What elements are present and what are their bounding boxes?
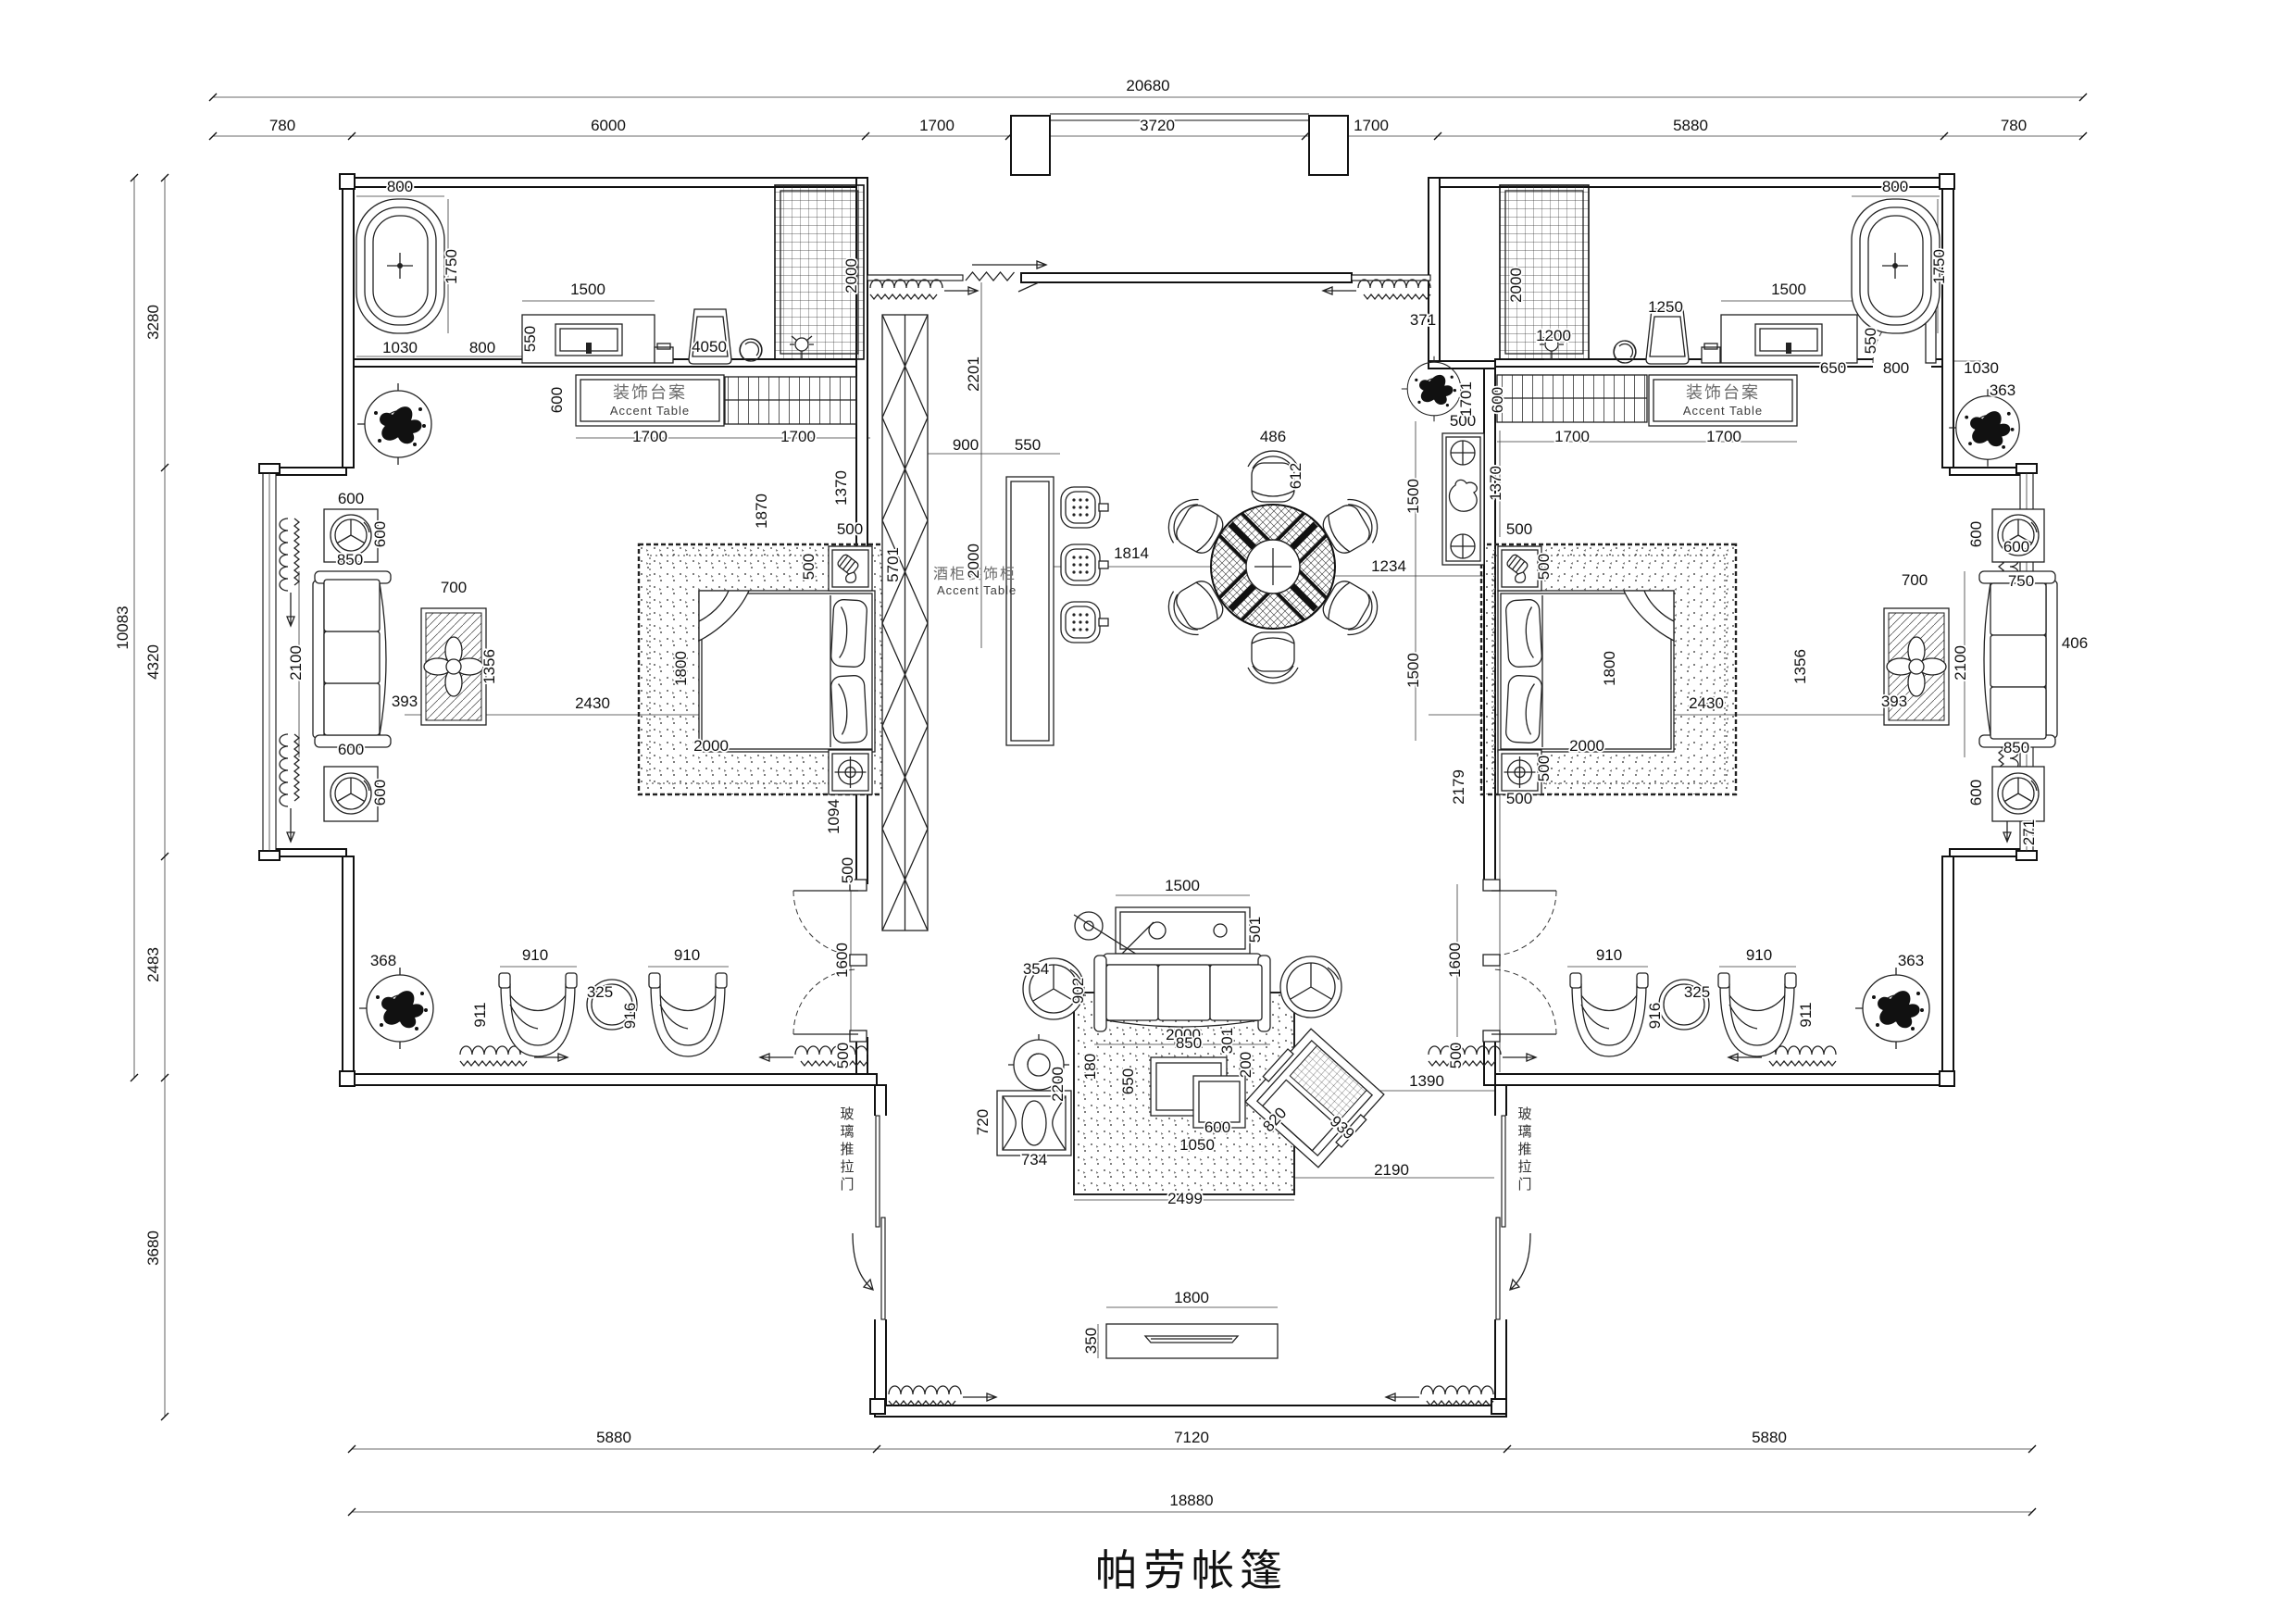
dim-label: 1800	[1601, 651, 1618, 686]
dim-label: 1701	[1457, 381, 1475, 417]
dim-label: 800	[1882, 178, 1908, 195]
wine-cabinet-icon	[882, 315, 928, 931]
dim-label: 780	[269, 117, 295, 134]
wall-extension-bottom	[875, 1405, 1506, 1417]
dim-label: 1250	[1648, 298, 1683, 316]
dim-label: 2200	[1049, 1067, 1067, 1102]
dim-label: 1356	[1791, 649, 1809, 684]
dim-label: 1500	[1404, 479, 1422, 514]
dim-label: 2000	[965, 543, 982, 579]
dim-label: 1500	[1165, 877, 1200, 894]
dim-label: 911	[471, 1002, 489, 1027]
dim-label: 700	[441, 579, 467, 596]
dim-label: 4050	[692, 338, 727, 356]
dim-label: 371	[1410, 311, 1436, 329]
wall-bay-connector	[1950, 468, 2022, 475]
dim-label: 7120	[1174, 1429, 1209, 1446]
window-cap	[2016, 464, 2037, 473]
dim-label: 1050	[1179, 1136, 1215, 1154]
dim-label: 4320	[144, 644, 162, 680]
dim-label: 1500	[1404, 653, 1422, 688]
dim-label: 612	[1287, 463, 1304, 489]
wine-cabinet-label-en: Accent Table	[937, 583, 1017, 597]
side-table	[1992, 767, 2044, 821]
dim-label: 600	[2003, 538, 2029, 556]
dim-label: 750	[2008, 572, 2034, 590]
dim-label: 1500	[570, 281, 605, 298]
dim-label: 20680	[1126, 77, 1169, 94]
dim-label: 325	[587, 983, 613, 1001]
dim-label: 910	[674, 946, 700, 964]
dim-label: 600	[338, 741, 364, 758]
dim-label: 2179	[1450, 769, 1467, 805]
corner-post	[870, 1399, 885, 1414]
dim-label: 1700	[1554, 428, 1590, 445]
dim-label: 1700	[919, 117, 955, 134]
dim-label: 550	[521, 326, 539, 352]
dim-label: 1200	[1536, 327, 1571, 344]
dim-label: 1370	[832, 470, 850, 506]
corner-post	[340, 1071, 355, 1086]
dim-label: 393	[392, 693, 418, 710]
dim-label: 916	[621, 1003, 639, 1029]
dim-label: 363	[1990, 381, 2015, 399]
dim-label: 650	[1119, 1068, 1137, 1094]
dim-label: 600	[338, 490, 364, 507]
dim-label: 180	[1081, 1054, 1099, 1080]
dim-label: 1700	[632, 428, 668, 445]
dim-label: 1800	[1174, 1289, 1209, 1306]
dim-label: 500	[1506, 790, 1532, 807]
wall-break-icon	[966, 272, 1015, 281]
console-table-icon	[1116, 907, 1250, 954]
dim-label: 354	[1023, 960, 1049, 978]
bar-counter-icon	[1006, 477, 1054, 745]
dim-label: 850	[337, 551, 363, 568]
dim-label: 1356	[480, 649, 498, 684]
dim-label: 720	[974, 1109, 992, 1135]
dim-label: 500	[839, 857, 856, 883]
dim-label: 10083	[114, 606, 131, 649]
dim-label: 900	[953, 436, 979, 454]
dim-label: 500	[1506, 520, 1532, 538]
dim-label: 1700	[1706, 428, 1741, 445]
dim-label: 550	[1015, 436, 1041, 454]
dim-label: 2430	[1689, 694, 1724, 712]
drawing-title: 帕劳帐篷	[1095, 1547, 1288, 1594]
dim-label: 1370	[1487, 466, 1504, 501]
wall-bay-connector	[274, 468, 346, 475]
dim-label: 3680	[144, 1230, 162, 1266]
dim-label: 5880	[596, 1429, 631, 1446]
wall-left-upper	[343, 178, 354, 468]
dim-label: 2000	[1507, 268, 1525, 303]
dim-label: 2190	[1374, 1161, 1409, 1179]
dim-label: 600	[1204, 1118, 1230, 1136]
dim-label: 1390	[1409, 1072, 1444, 1090]
dim-label: 5701	[884, 547, 902, 582]
dim-label: 800	[1883, 359, 1909, 377]
wall-bottom-right-suite	[1495, 1074, 1953, 1085]
porch-column	[1309, 116, 1348, 175]
dim-label: 911	[1797, 1002, 1815, 1027]
round-side-table	[1280, 956, 1341, 1018]
dim-label: 550	[1862, 328, 1879, 354]
dim-label: 1600	[833, 943, 851, 978]
window-cap	[259, 464, 280, 473]
fan-ornament-icon	[740, 339, 762, 361]
dim-label: 500	[1535, 554, 1553, 580]
curtains	[280, 280, 2018, 1405]
dim-label: 600	[1967, 780, 1985, 806]
accent-table-right-label-zh: 装饰台案	[1686, 383, 1760, 402]
dim-label: 271	[2020, 819, 2038, 845]
console-strip-icon	[1442, 433, 1484, 565]
dim-label: 1030	[1964, 359, 1999, 377]
dim-label: 5880	[1752, 1429, 1787, 1446]
dim-label: 406	[2062, 634, 2088, 652]
dim-label: 501	[1246, 917, 1264, 943]
dim-label: 500	[1535, 756, 1553, 781]
wall-inner-right-top	[1429, 178, 1440, 369]
dim-label: 850	[1176, 1034, 1202, 1052]
accent-table-right-label-en: Accent Table	[1683, 404, 1763, 418]
dim-label: 2430	[575, 694, 610, 712]
extension-room	[1106, 1324, 1278, 1358]
dim-label: 3720	[1140, 117, 1175, 134]
dim-label: 18880	[1169, 1492, 1213, 1509]
dim-label: 350	[1082, 1328, 1100, 1354]
dim-label: 6000	[591, 117, 626, 134]
dim-label: 500	[800, 554, 817, 580]
accent-table-left-label-en: Accent Table	[610, 404, 690, 418]
dim-label: 1800	[672, 651, 690, 686]
center-zone	[882, 315, 1484, 931]
side-table	[324, 767, 378, 821]
dim-label: 2201	[965, 356, 982, 392]
dim-label: 734	[1021, 1151, 1047, 1168]
dim-label: 1094	[825, 799, 842, 834]
dim-label: 600	[1967, 521, 1985, 547]
dim-label: 325	[1684, 983, 1710, 1001]
wall-center-top	[1021, 273, 1352, 282]
window-cap	[2016, 851, 2037, 860]
dim-label: 393	[1881, 693, 1907, 710]
floor-plan-canvas: 装饰台案 Accent Table 装饰台案 Accent Table 酒柜装饰…	[0, 0, 2296, 1624]
dining-table-icon	[1211, 505, 1335, 629]
wall-bottom-left-suite	[346, 1074, 877, 1085]
dim-label: 500	[837, 520, 863, 538]
wall-bay-connector	[274, 849, 346, 856]
dim-label: 780	[2001, 117, 2027, 134]
dim-label: 301	[1218, 1028, 1236, 1054]
dim-label: 600	[1489, 387, 1506, 413]
dim-label: 2483	[144, 947, 162, 982]
corner-post	[1940, 1071, 1954, 1086]
dim-label: 3280	[144, 305, 162, 340]
dim-label: 800	[387, 178, 413, 195]
wall-left-lower	[343, 856, 354, 1085]
dim-label: 1750	[1930, 249, 1948, 284]
corner-post	[1940, 174, 1954, 189]
left-bathroom	[356, 185, 864, 465]
dim-label: 1814	[1114, 544, 1149, 562]
walls	[259, 114, 2037, 1417]
dim-label: 2000	[842, 258, 860, 294]
dim-label: 2100	[1952, 645, 1969, 681]
dim-label: 1600	[1446, 943, 1464, 978]
dim-label: 368	[370, 952, 396, 969]
sill-center-left	[867, 275, 963, 281]
wall-right-upper	[1942, 178, 1953, 468]
wall-bay-connector	[1950, 849, 2022, 856]
dim-label: 500	[834, 1043, 852, 1068]
dim-label: 700	[1902, 571, 1928, 589]
corner-post	[340, 174, 355, 189]
dim-label: 1500	[1771, 281, 1806, 298]
accent-table-left-label-zh: 装饰台案	[613, 383, 687, 402]
dim-label: 600	[371, 780, 389, 806]
dim-label: 1700	[780, 428, 816, 445]
dim-label: 2100	[287, 645, 305, 681]
dim-label: 650	[1820, 359, 1846, 377]
dim-label: 1750	[443, 249, 460, 284]
dim-label: 500	[1447, 1043, 1465, 1068]
glass-door-right-label: 玻璃推拉门	[1516, 1106, 1532, 1194]
window-cap	[259, 851, 280, 860]
right-bathroom	[1497, 185, 2019, 467]
dim-label: 486	[1260, 428, 1286, 445]
dim-label: 2000	[693, 737, 729, 755]
dim-label: 800	[469, 339, 495, 356]
wall-right-lower	[1942, 856, 1953, 1085]
dim-label: 1234	[1371, 557, 1406, 575]
wall-inner-right-low	[1484, 1037, 1495, 1085]
dim-label: 363	[1898, 952, 1924, 969]
porch-column	[1011, 116, 1050, 175]
dim-label: 916	[1646, 1003, 1664, 1029]
dim-label: 902	[1069, 978, 1087, 1004]
dim-label: 2499	[1167, 1190, 1203, 1207]
dim-label: 2000	[1569, 737, 1604, 755]
dim-label: 910	[1596, 946, 1622, 964]
left-suite	[313, 509, 893, 1056]
dim-label: 600	[371, 521, 389, 547]
dim-label: 600	[548, 387, 566, 413]
dim-label: 850	[2003, 739, 2029, 756]
dim-label: 200	[1237, 1052, 1254, 1078]
dim-label: 1030	[382, 339, 418, 356]
dim-label: 910	[1746, 946, 1772, 964]
dim-label: 1870	[753, 493, 770, 529]
glass-door-left-label: 玻璃推拉门	[839, 1106, 855, 1194]
dim-label: 910	[522, 946, 548, 964]
dim-label: 1700	[1354, 117, 1389, 134]
dim-label: 5880	[1673, 117, 1708, 134]
